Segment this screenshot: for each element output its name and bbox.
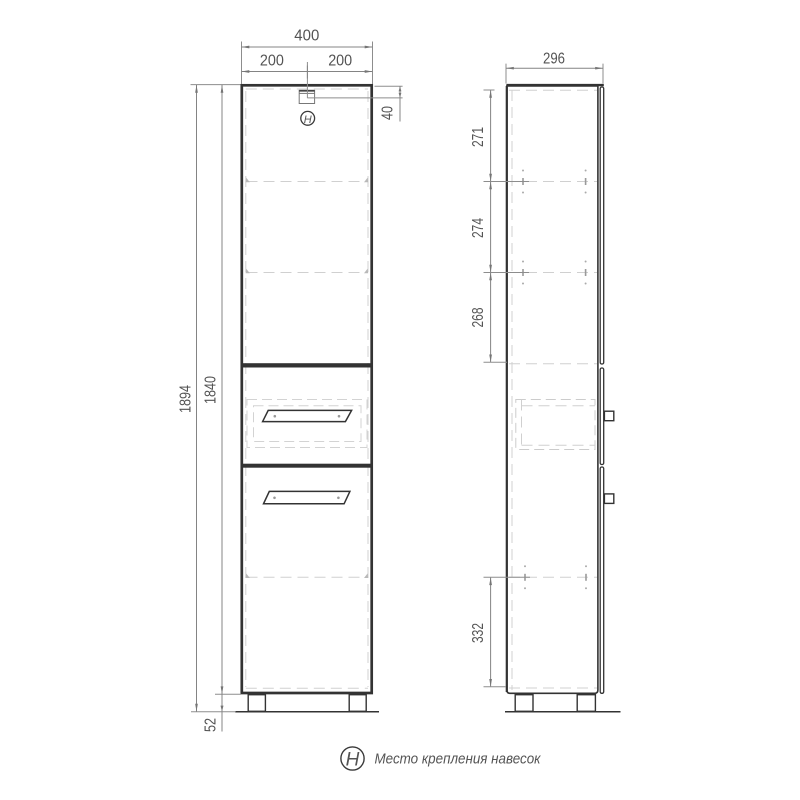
svg-text:274: 274 xyxy=(470,218,487,238)
svg-text:268: 268 xyxy=(470,307,487,327)
svg-text:H: H xyxy=(304,114,312,126)
svg-text:400: 400 xyxy=(294,28,319,45)
svg-text:1894: 1894 xyxy=(178,385,195,413)
svg-text:332: 332 xyxy=(470,623,487,643)
svg-text:271: 271 xyxy=(470,127,487,147)
svg-text:200: 200 xyxy=(328,52,352,69)
svg-text:296: 296 xyxy=(543,51,565,68)
svg-text:40: 40 xyxy=(380,106,397,120)
svg-text:H: H xyxy=(346,750,360,771)
svg-text:52: 52 xyxy=(203,718,220,732)
svg-text:Место крепления навесок: Место крепления навесок xyxy=(375,751,542,768)
svg-text:200: 200 xyxy=(260,52,284,69)
svg-text:1840: 1840 xyxy=(203,376,220,404)
